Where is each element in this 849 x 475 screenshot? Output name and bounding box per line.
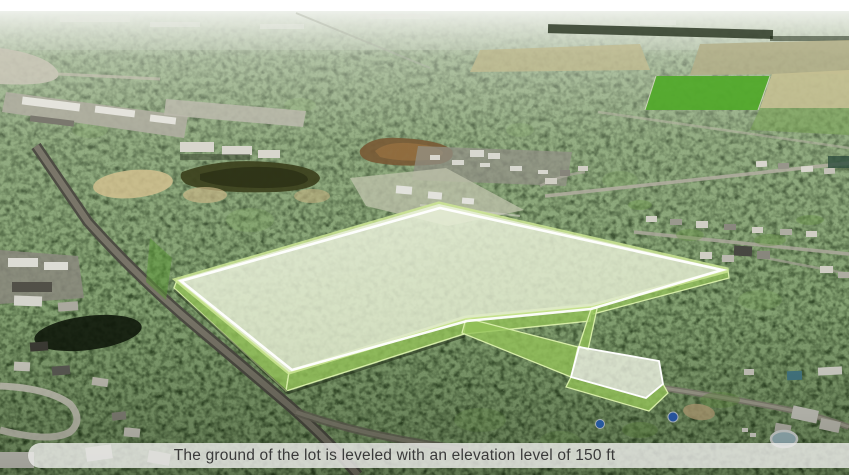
- caption-bar: The ground of the lot is leveled with an…: [28, 443, 849, 468]
- slide: The ground of the lot is leveled with an…: [0, 0, 849, 475]
- map-canvas: [0, 0, 849, 475]
- caption-text: The ground of the lot is leveled with an…: [174, 447, 615, 465]
